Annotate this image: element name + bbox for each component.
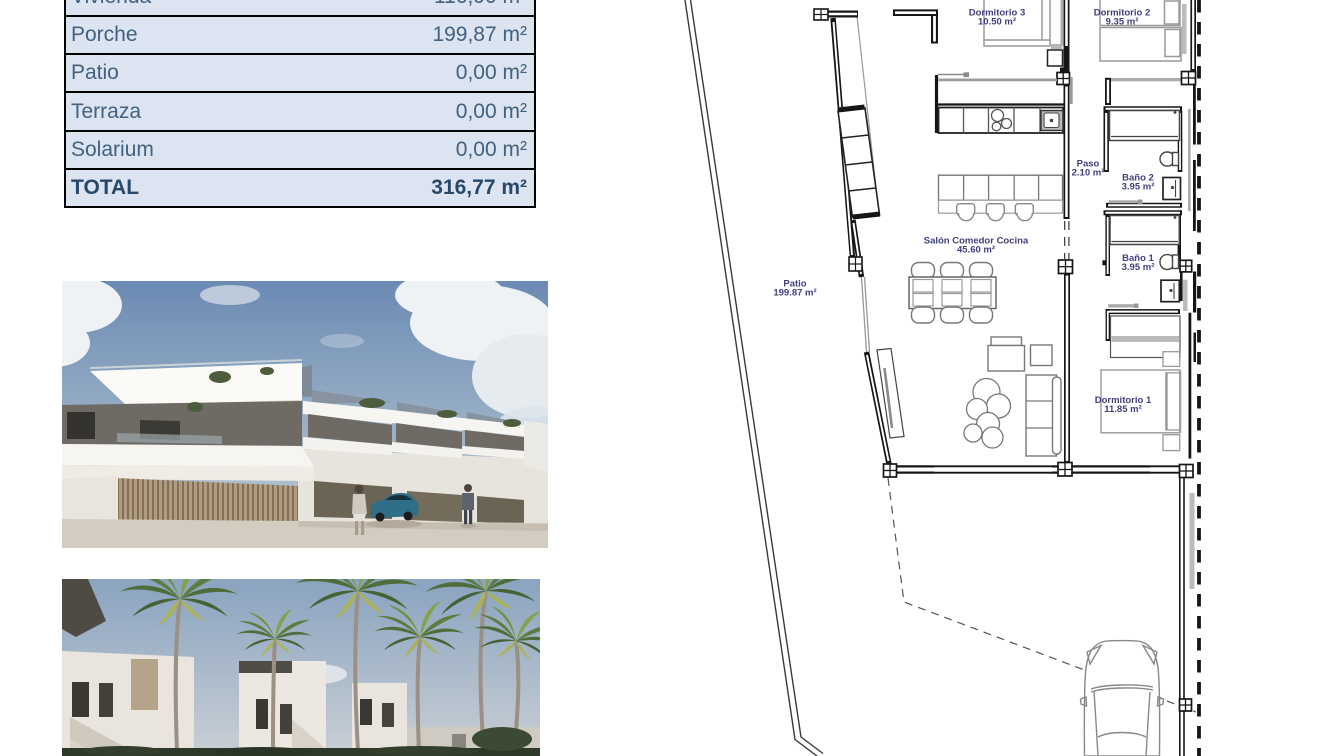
svg-text:10.50 m²: 10.50 m² — [978, 17, 1016, 28]
svg-text:9.35 m²: 9.35 m² — [1106, 17, 1139, 28]
svg-text:199.87 m²: 199.87 m² — [773, 288, 816, 299]
svg-text:11.85 m²: 11.85 m² — [1104, 404, 1142, 415]
svg-text:3.95 m²: 3.95 m² — [1122, 262, 1155, 273]
svg-text:3.95 m²: 3.95 m² — [1122, 182, 1155, 193]
svg-text:45.60 m²: 45.60 m² — [957, 245, 995, 256]
svg-text:2.10 m²: 2.10 m² — [1072, 168, 1105, 179]
